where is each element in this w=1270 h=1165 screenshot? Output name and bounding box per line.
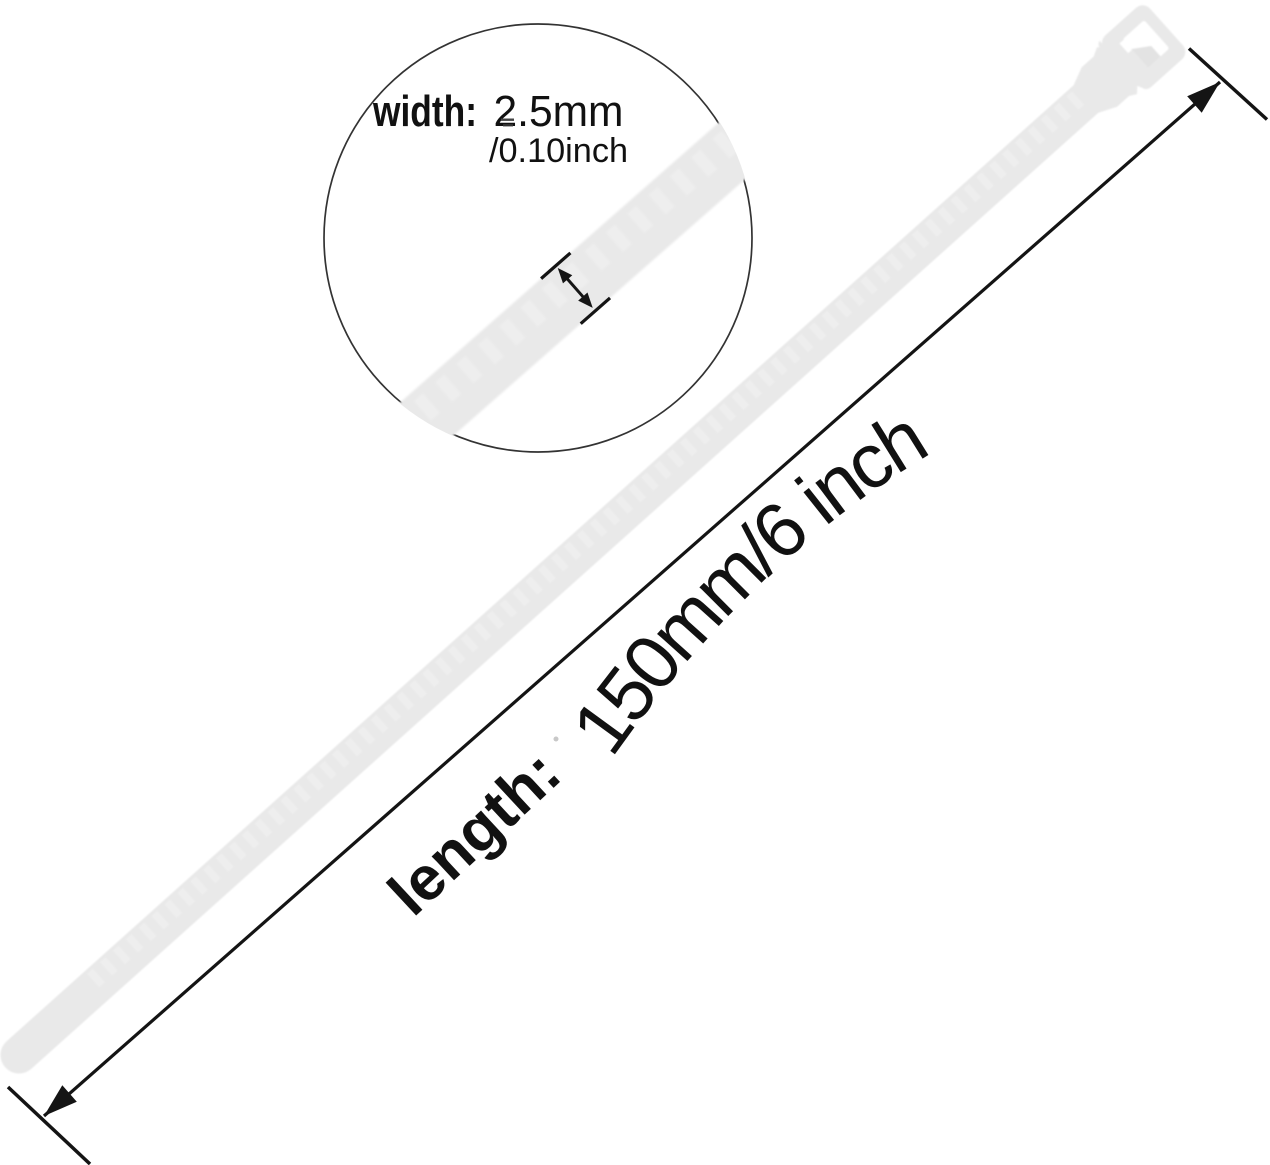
svg-text:/0.10inch: /0.10inch	[489, 132, 628, 170]
svg-text:2.5mm: 2.5mm	[494, 87, 624, 136]
svg-text:width:: width:	[372, 87, 477, 136]
